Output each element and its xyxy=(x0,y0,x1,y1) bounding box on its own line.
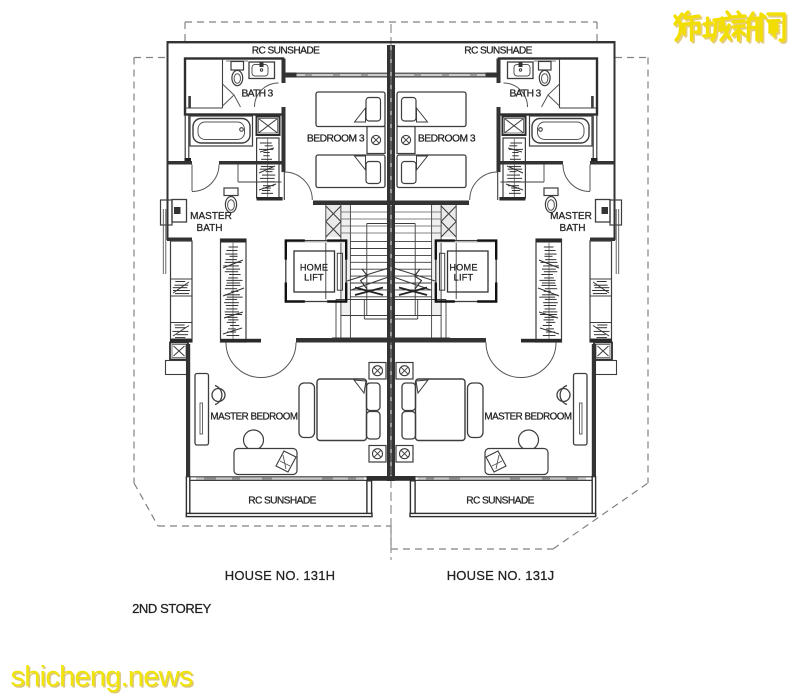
svg-text:RC SUNSHADE: RC SUNSHADE xyxy=(248,496,316,507)
svg-text:BATH: BATH xyxy=(560,223,586,234)
svg-text:HOME: HOME xyxy=(449,263,477,273)
svg-text:RC SUNSHADE: RC SUNSHADE xyxy=(464,46,532,57)
svg-text:LIFT: LIFT xyxy=(304,273,324,283)
svg-text:BEDROOM 3: BEDROOM 3 xyxy=(418,134,476,145)
svg-text:2ND STOREY: 2ND STOREY xyxy=(132,601,212,616)
svg-text:HOME: HOME xyxy=(300,263,328,273)
svg-text:BATH 3: BATH 3 xyxy=(241,89,273,100)
svg-text:RC SUNSHADE: RC SUNSHADE xyxy=(466,496,534,507)
svg-text:LIFT: LIFT xyxy=(454,273,474,283)
svg-text:HOUSE NO. 131J: HOUSE NO. 131J xyxy=(447,568,555,583)
svg-text:shicheng.news: shicheng.news xyxy=(11,661,193,693)
svg-text:HOUSE NO. 131H: HOUSE NO. 131H xyxy=(225,568,335,583)
svg-text:BATH: BATH xyxy=(197,223,223,234)
svg-text:MASTER: MASTER xyxy=(550,211,592,222)
svg-text:MASTER BEDROOM: MASTER BEDROOM xyxy=(484,412,572,423)
svg-text:MASTER BEDROOM: MASTER BEDROOM xyxy=(210,412,298,423)
svg-text:BATH 3: BATH 3 xyxy=(509,89,541,100)
svg-text:MASTER: MASTER xyxy=(190,211,232,222)
svg-text:BEDROOM 3: BEDROOM 3 xyxy=(307,134,365,145)
svg-text:RC SUNSHADE: RC SUNSHADE xyxy=(252,46,320,57)
